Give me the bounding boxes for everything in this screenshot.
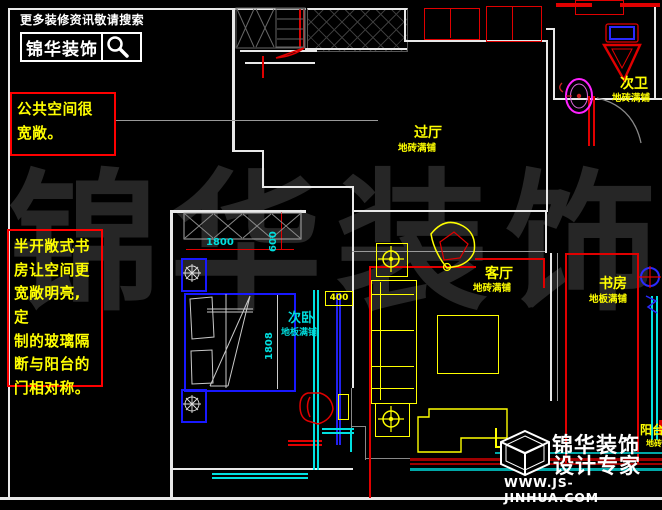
study-desk-line — [550, 253, 552, 401]
entry-cabinet-divider — [512, 6, 513, 40]
wall-segment — [352, 210, 546, 212]
door-jamb — [593, 96, 595, 146]
dimension-text: 600 — [268, 216, 279, 252]
tv-cabinet-symbol — [418, 409, 507, 452]
sofa-outline — [371, 280, 417, 404]
desk-symbol — [338, 394, 349, 420]
bath-cabinet — [575, 0, 624, 15]
wall-segment — [545, 212, 547, 253]
room-label-study: 书房 — [599, 273, 627, 293]
door-jamb — [299, 8, 301, 48]
toilet-symbol — [604, 24, 640, 80]
header-tagline: 更多装修资讯敬请搜索 — [20, 11, 144, 28]
wall-finish-line — [475, 258, 545, 260]
annotation-box-study-partition: 半开敞式书 房让空间更 宽敞明亮,定 制的玻璃隔 断与阳台的 门相对称。 — [7, 229, 103, 387]
entry-closet-symbol — [236, 8, 305, 48]
wall-segment — [262, 186, 354, 188]
door-jamb — [588, 96, 590, 146]
watermark-char: 饰 — [505, 168, 657, 320]
door-jamb — [303, 8, 305, 48]
wall-segment — [654, 6, 656, 100]
wall-segment — [232, 150, 264, 152]
entry-cabinet-divider — [450, 8, 451, 38]
room-label-hallway: 过厅 — [414, 122, 442, 142]
room-label-balcony: 阳台 — [640, 421, 662, 438]
wall-finish-line — [543, 258, 545, 288]
boundary-line — [365, 426, 366, 460]
sofa-line — [372, 388, 414, 389]
partition-line — [339, 293, 341, 445]
sofa-line — [372, 294, 414, 295]
dimension-box: 400 — [325, 291, 353, 306]
wall-segment — [170, 468, 353, 470]
wall-segment — [305, 48, 407, 50]
dimension-text: 1808 — [264, 320, 275, 360]
boundary-line — [351, 426, 366, 427]
window-line — [350, 428, 352, 452]
sofa-line — [372, 330, 414, 331]
wall-segment — [245, 62, 315, 64]
nightstand — [181, 389, 207, 423]
room-label-bedroom2: 次卧 — [288, 307, 314, 326]
wall-segment — [232, 8, 235, 152]
entry-cabinet — [486, 6, 542, 42]
wall-segment — [404, 8, 406, 42]
wall-segment — [546, 98, 548, 212]
room-finish-balcony: 地砖满铺 — [646, 438, 662, 449]
wall-segment — [262, 150, 264, 188]
annotation-leader-line — [114, 120, 378, 121]
search-icon — [103, 34, 131, 60]
coffee-table — [437, 315, 499, 374]
window-line — [651, 296, 653, 440]
sofa-line — [372, 366, 414, 367]
window-line — [212, 477, 308, 479]
annotation-box-public-space: 公共空间很 宽敞。 — [10, 92, 116, 156]
room-finish-bedroom2: 地板满铺 — [281, 325, 317, 338]
bath-door-arc — [597, 98, 641, 143]
floorplan-canvas: 锦 华 装 饰 — [0, 0, 662, 510]
window-line — [212, 473, 308, 475]
ceiling-lamp-box — [375, 403, 410, 437]
wall-finish-line — [262, 56, 264, 78]
header-brand-text: 锦华装饰 — [22, 35, 98, 60]
wall-segment — [352, 186, 354, 388]
window-line — [656, 296, 658, 440]
ceiling-lamp-box — [376, 243, 408, 277]
wall-segment — [240, 50, 317, 52]
study-wall-line — [565, 253, 639, 255]
wall-segment — [553, 28, 555, 100]
glass-partition — [317, 290, 319, 470]
bed-outline — [184, 293, 296, 392]
furniture-line — [495, 428, 497, 448]
wall-finish-line — [620, 3, 660, 7]
dimension-line — [281, 212, 282, 250]
room-finish-hallway: 地砖满铺 — [398, 140, 436, 154]
header-logo-box: 锦华装饰 — [20, 32, 142, 62]
study-desk-line — [557, 253, 558, 401]
partition-line — [336, 293, 338, 445]
dimension-text: 1800 — [206, 237, 234, 248]
frame-top — [8, 8, 306, 10]
wall-segment — [170, 210, 173, 498]
nightstand — [181, 258, 207, 292]
room-finish-bath2: 地砖满铺 — [612, 90, 650, 104]
room-finish-living: 地砖满铺 — [473, 280, 511, 294]
room-finish-study: 地板满铺 — [589, 291, 627, 305]
stair-shaft-hatch — [307, 8, 408, 52]
wall-segment — [170, 210, 306, 213]
entry-cabinet — [424, 8, 480, 40]
boundary-line — [351, 388, 352, 428]
footer-website: WWW.JS-JINHUA.COM — [504, 475, 662, 505]
furniture-line — [495, 446, 505, 448]
sofa-line — [380, 282, 381, 400]
wall-segment — [546, 40, 548, 100]
